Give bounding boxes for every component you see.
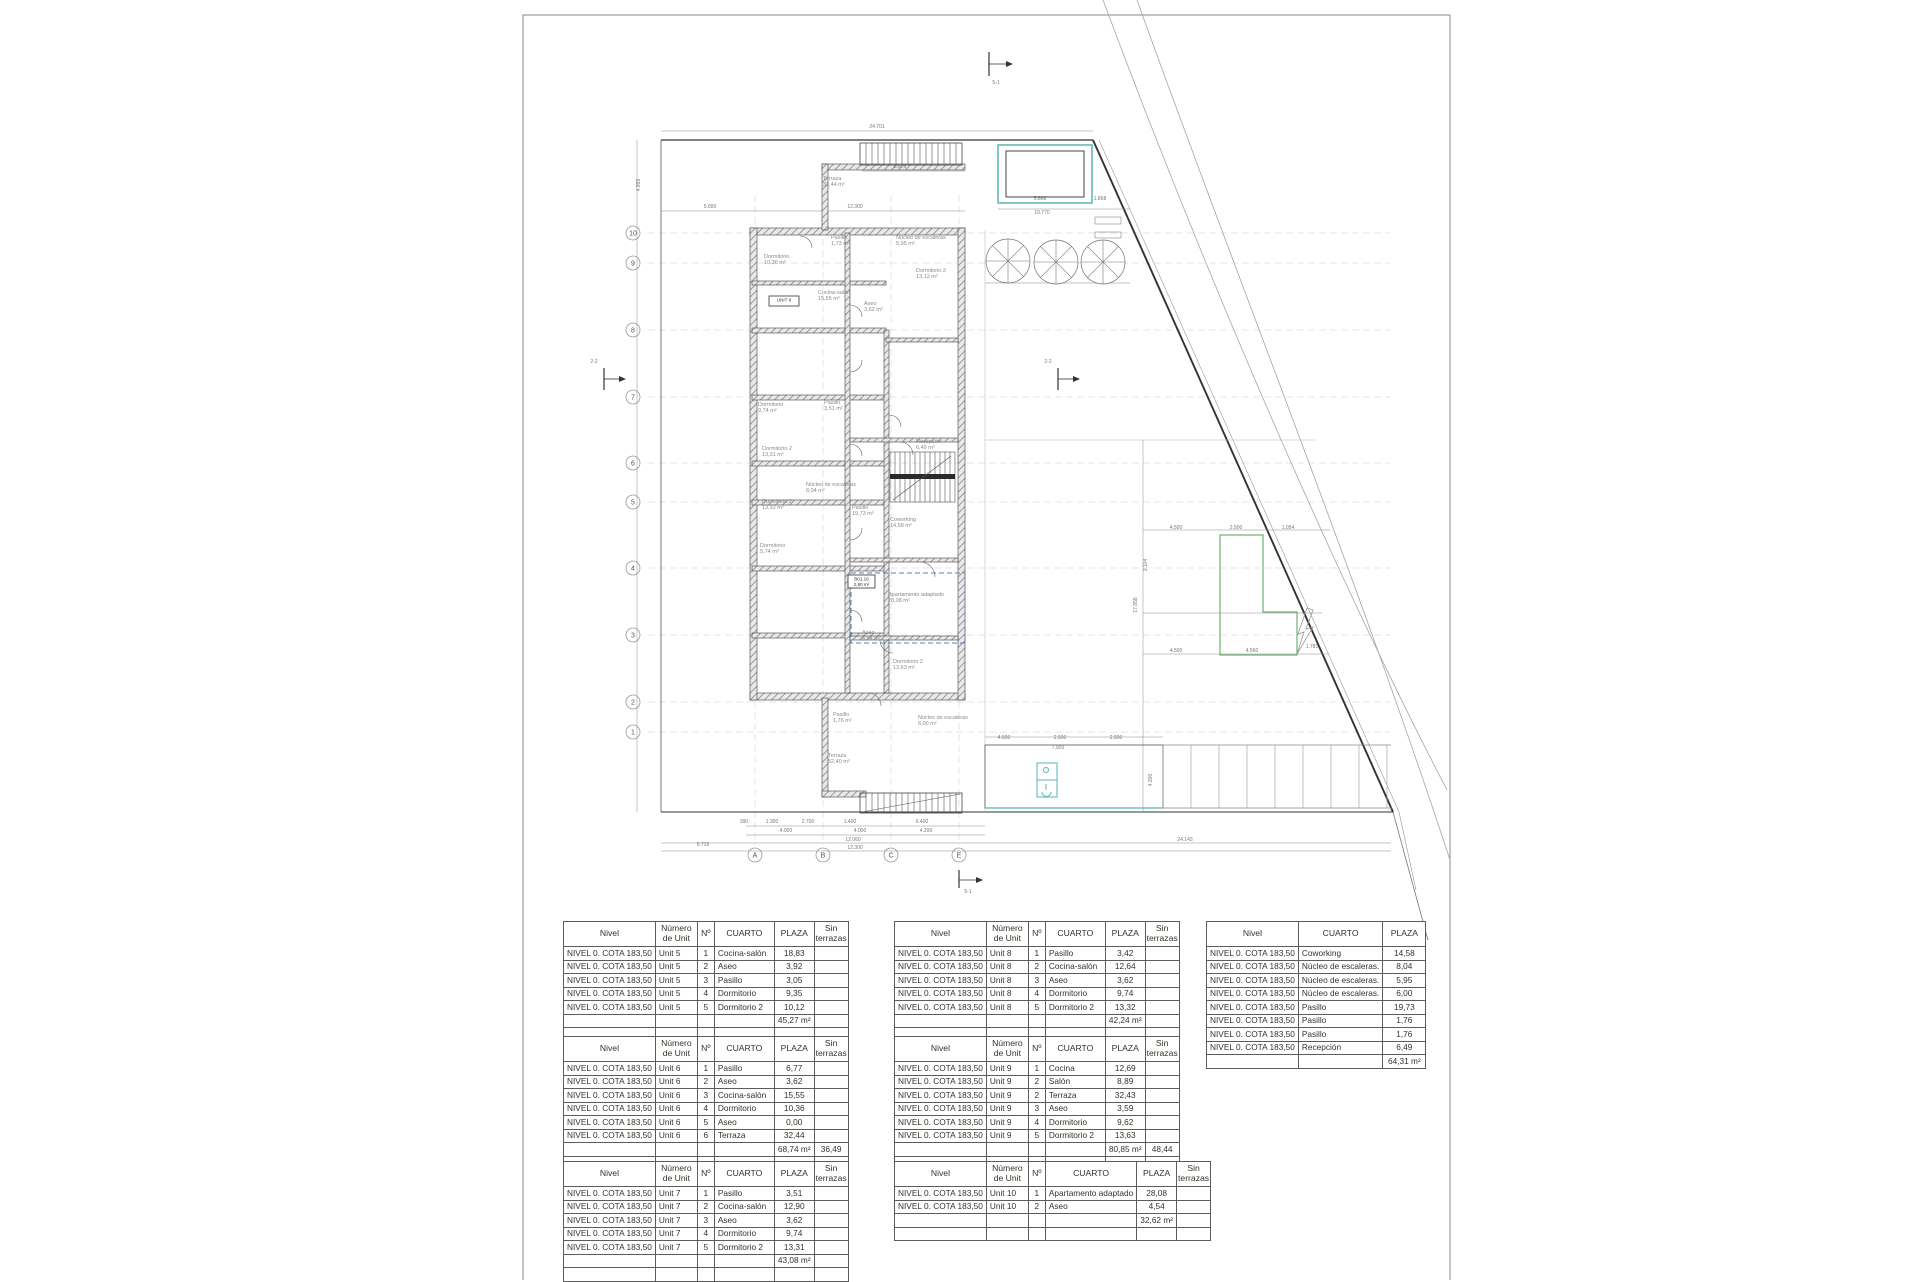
svg-text:5.000: 5.000: [704, 204, 717, 210]
svg-text:2: 2: [631, 699, 635, 706]
green-utility-area: [1220, 535, 1313, 655]
svg-text:12.300: 12.300: [847, 204, 863, 210]
svg-text:E: E: [957, 852, 962, 859]
area-table-unit10: NivelNúmero de UnitNºCUARTOPLAZASin terr…: [894, 1161, 1211, 1241]
svg-text:4: 4: [631, 565, 635, 572]
svg-text:24.701: 24.701: [869, 124, 885, 130]
area-table-common: NivelCUARTOPLAZANIVEL 0. COTA 183,50Cowo…: [1206, 921, 1426, 1069]
svg-text:2-2: 2-2: [1044, 359, 1051, 365]
svg-text:10.770: 10.770: [1034, 210, 1050, 216]
svg-text:B01.162,80 m²: B01.162,80 m²: [854, 577, 870, 587]
svg-text:7.920: 7.920: [1052, 745, 1065, 751]
svg-text:5.868: 5.868: [1034, 196, 1047, 202]
svg-text:2.500: 2.500: [1110, 735, 1123, 741]
svg-text:4.500: 4.500: [1170, 525, 1183, 531]
svg-text:Pasillo1,76 m²: Pasillo1,76 m²: [833, 712, 852, 724]
svg-text:5: 5: [631, 499, 635, 506]
svg-text:Núcleo de escaleras5,95 m²: Núcleo de escaleras5,95 m²: [896, 235, 946, 247]
area-table-unit5: NivelNúmero de UnitNºCUARTOPLAZASin terr…: [563, 921, 849, 1042]
area-table-unit9: NivelNúmero de UnitNºCUARTOPLAZASin terr…: [894, 1036, 1180, 1170]
svg-text:Terraza32,44 m²: Terraza32,44 m²: [823, 176, 845, 188]
grid-column-axes: ABCE: [748, 195, 966, 862]
room-labels: Terraza32,44 m²Pasillo1,73 m²Núcleo de e…: [758, 176, 968, 765]
svg-text:Dormitorio9,74 m²: Dormitorio9,74 m²: [758, 402, 783, 414]
svg-text:4.000: 4.000: [854, 828, 867, 834]
svg-text:B: B: [821, 852, 826, 859]
svg-text:9: 9: [631, 260, 635, 267]
svg-text:4.500: 4.500: [1170, 648, 1183, 654]
svg-text:5-1: 5-1: [992, 80, 999, 86]
pool: [998, 145, 1092, 203]
area-table-unit7: NivelNúmero de UnitNºCUARTOPLAZASin terr…: [563, 1161, 849, 1282]
svg-text:1.300: 1.300: [766, 819, 779, 825]
parking-area: [985, 745, 1392, 808]
svg-text:4.560: 4.560: [1246, 648, 1259, 654]
svg-text:1.868: 1.868: [1094, 196, 1107, 202]
dimension-labels: 24.7018.6755.00012.3005.8681.86810.77039…: [590, 80, 1318, 895]
svg-text:Recepción6,49 m²: Recepción6,49 m²: [916, 439, 942, 451]
svg-text:Terraza52,40 m²: Terraza52,40 m²: [828, 753, 850, 765]
svg-text:1.054: 1.054: [1282, 525, 1295, 531]
svg-text:Pasillo19,73 m²: Pasillo19,73 m²: [852, 505, 874, 517]
svg-text:10: 10: [629, 230, 637, 237]
svg-text:Dormitorio 213,63 m²: Dormitorio 213,63 m²: [893, 659, 923, 671]
svg-text:Núcleo de escaleras6,00 m²: Núcleo de escaleras6,00 m²: [918, 715, 968, 727]
svg-text:UNIT 6: UNIT 6: [777, 298, 792, 303]
svg-text:12.300: 12.300: [847, 845, 863, 851]
svg-text:8.675: 8.675: [894, 164, 907, 170]
svg-text:A: A: [753, 852, 758, 859]
svg-text:12.060: 12.060: [845, 837, 861, 843]
svg-text:390: 390: [740, 819, 749, 825]
svg-text:Pasillo1,73 m²: Pasillo1,73 m²: [831, 235, 850, 247]
svg-text:Apartamento adaptado28,08 m²: Apartamento adaptado28,08 m²: [888, 592, 944, 604]
svg-text:Dormitorio5,74 m²: Dormitorio5,74 m²: [760, 543, 785, 555]
road-curves: [1103, 0, 1450, 860]
svg-text:6.400: 6.400: [916, 819, 929, 825]
svg-text:1: 1: [631, 729, 635, 736]
svg-text:17.858: 17.858: [1133, 597, 1139, 613]
svg-text:8: 8: [631, 327, 635, 334]
svg-text:5.715: 5.715: [697, 842, 710, 848]
svg-text:Dormitorio 213,12 m²: Dormitorio 213,12 m²: [916, 268, 946, 280]
svg-text:3: 3: [631, 632, 635, 639]
area-table-unit6: NivelNúmero de UnitNºCUARTOPLAZASin terr…: [563, 1036, 849, 1170]
parasols: [985, 217, 1130, 284]
svg-text:Aseo3,62 m²: Aseo3,62 m²: [864, 301, 883, 313]
svg-text:2.700: 2.700: [802, 819, 815, 825]
svg-text:5-1: 5-1: [964, 889, 971, 895]
svg-text:3.104: 3.104: [1143, 559, 1149, 572]
svg-text:24.143: 24.143: [1177, 837, 1193, 843]
svg-text:C: C: [888, 852, 893, 859]
svg-text:2-2: 2-2: [590, 359, 597, 365]
accessibility-symbol: [985, 763, 1163, 808]
svg-text:2.500: 2.500: [1230, 525, 1243, 531]
svg-text:Aseo4,54 m²: Aseo4,54 m²: [862, 630, 881, 642]
svg-text:1.781: 1.781: [1306, 644, 1319, 650]
svg-text:Coworking14,58 m²: Coworking14,58 m²: [890, 517, 916, 529]
grid-row-axes: 10987654321: [626, 226, 1390, 739]
svg-text:4.300: 4.300: [1148, 774, 1154, 787]
svg-text:Dormitorio10,36 m²: Dormitorio10,36 m²: [764, 254, 789, 266]
svg-text:Pasillo3,51 m²: Pasillo3,51 m²: [824, 400, 843, 412]
svg-text:1.400: 1.400: [844, 819, 857, 825]
svg-text:6: 6: [631, 460, 635, 467]
svg-text:4.200: 4.200: [920, 828, 933, 834]
svg-text:Dormitorio 213,31 m²: Dormitorio 213,31 m²: [762, 446, 792, 458]
svg-text:7: 7: [631, 394, 635, 401]
svg-text:4.500: 4.500: [998, 735, 1011, 741]
area-table-unit8: NivelNúmero de UnitNºCUARTOPLAZASin terr…: [894, 921, 1180, 1042]
svg-text:2.500: 2.500: [1054, 735, 1067, 741]
svg-text:4.999: 4.999: [636, 179, 642, 192]
svg-text:4.000: 4.000: [780, 828, 793, 834]
